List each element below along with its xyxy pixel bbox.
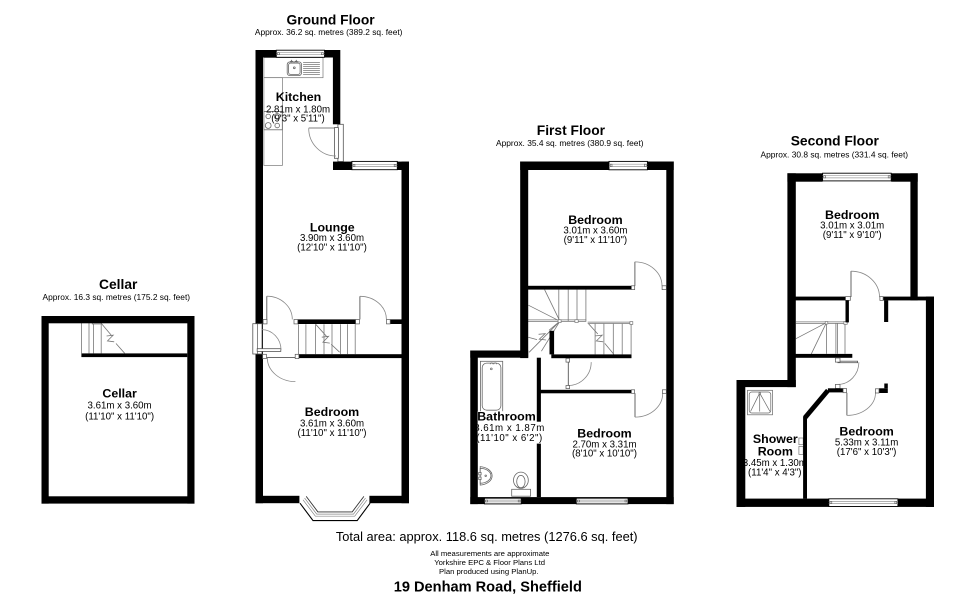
svg-text:(8'10" x 10'10"): (8'10" x 10'10") xyxy=(572,449,637,460)
svg-text:Plan produced using PlanUp.: Plan produced using PlanUp. xyxy=(439,567,539,576)
svg-text:All measurements are approxima: All measurements are approximate xyxy=(430,549,549,558)
svg-text:Cellar: Cellar xyxy=(99,277,138,292)
svg-text:Approx. 30.8 sq. metres (331.4: Approx. 30.8 sq. metres (331.4 sq. feet) xyxy=(761,150,909,160)
svg-text:Kitchen: Kitchen xyxy=(276,90,321,104)
svg-text:(12'10" x 11'10"): (12'10" x 11'10") xyxy=(297,243,367,254)
svg-text:Approx. 16.3 sq. metres (175.2: Approx. 16.3 sq. metres (175.2 sq. feet) xyxy=(43,292,191,302)
svg-text:(9'11" x 11'10"): (9'11" x 11'10") xyxy=(564,235,628,246)
svg-text:(17'6" x 10'3"): (17'6" x 10'3") xyxy=(837,447,897,458)
svg-text:(11'10" x 11'10"): (11'10" x 11'10") xyxy=(298,428,367,439)
svg-text:(11'10" x 11'10"): (11'10" x 11'10") xyxy=(85,412,154,423)
svg-text:Bathroom: Bathroom xyxy=(477,409,536,423)
svg-text:Second Floor: Second Floor xyxy=(791,134,880,149)
svg-text:Bedroom: Bedroom xyxy=(577,426,631,440)
svg-text:(9'11" x 9'10"): (9'11" x 9'10") xyxy=(823,230,882,241)
svg-text:Cellar: Cellar xyxy=(102,387,137,401)
svg-text:First Floor: First Floor xyxy=(537,123,606,138)
svg-text:Approx. 36.2 sq. metres (389.2: Approx. 36.2 sq. metres (389.2 sq. feet) xyxy=(255,27,403,37)
svg-text:(11'10" x 6'2"): (11'10" x 6'2") xyxy=(476,433,542,444)
svg-text:(11'4" x 4'3"): (11'4" x 4'3") xyxy=(748,467,801,478)
svg-text:19 Denham Road, Sheffield: 19 Denham Road, Sheffield xyxy=(394,580,582,594)
svg-text:3.61m x 3.60m: 3.61m x 3.60m xyxy=(88,401,152,412)
svg-text:(9'3" x 5'11"): (9'3" x 5'11") xyxy=(271,113,324,124)
svg-text:Bedroom: Bedroom xyxy=(305,405,359,419)
svg-text:Total area: approx. 118.6 sq.: Total area: approx. 118.6 sq. metres (12… xyxy=(336,529,638,544)
svg-text:Ground Floor: Ground Floor xyxy=(287,12,376,27)
svg-text:Room: Room xyxy=(758,444,793,458)
svg-text:Approx. 35.4 sq. metres (380.9: Approx. 35.4 sq. metres (380.9 sq. feet) xyxy=(496,138,644,148)
